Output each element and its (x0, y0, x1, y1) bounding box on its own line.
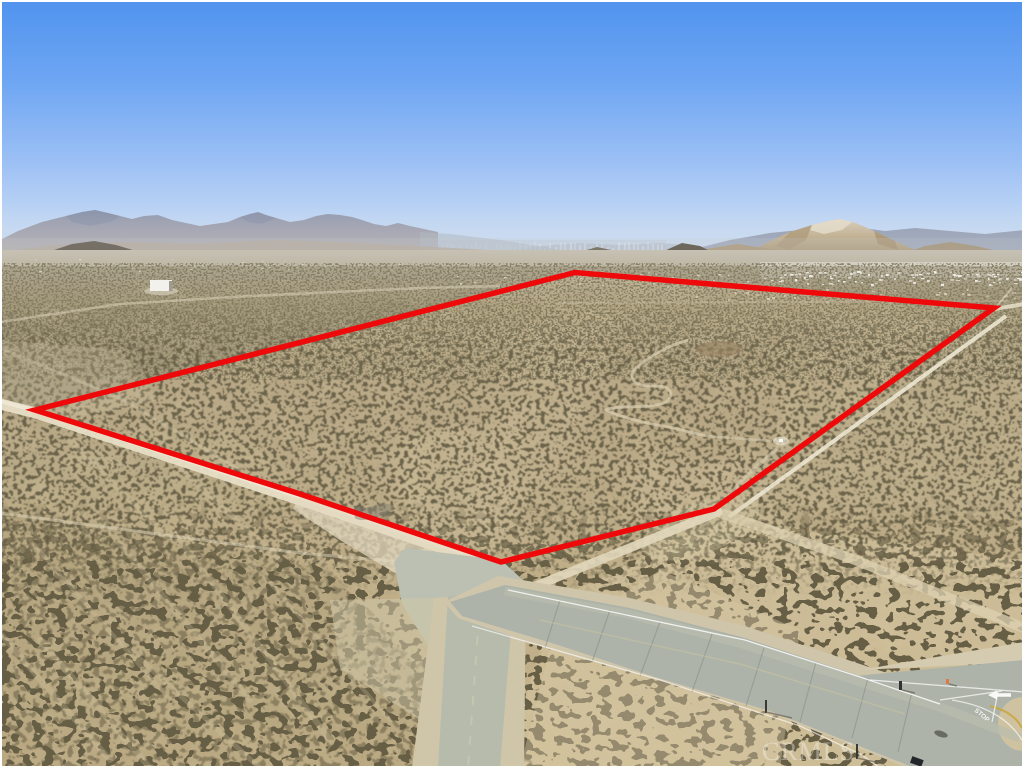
svg-text:CRMLS: CRMLS (762, 737, 855, 766)
